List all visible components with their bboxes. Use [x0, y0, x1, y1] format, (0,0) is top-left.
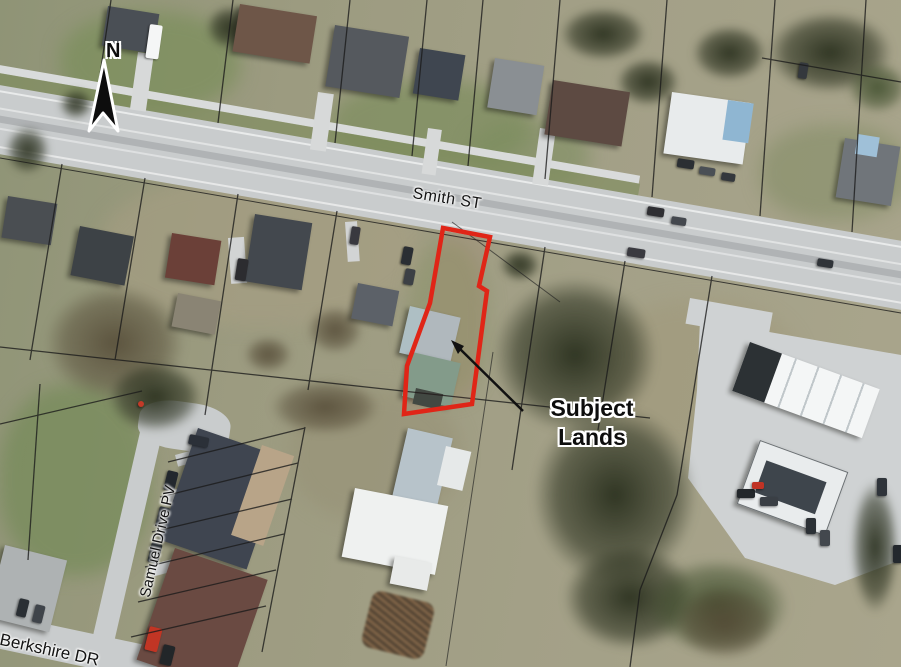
north-arrow-icon [89, 60, 118, 131]
map-overlay-graphics [0, 0, 901, 667]
north-label: N [106, 40, 120, 63]
subject-lands-label: Subject Lands [534, 394, 650, 452]
subject-lands-outline [404, 228, 490, 414]
aerial-map: N Smith ST Samuel Drive PV Berkshire DR … [0, 0, 901, 667]
